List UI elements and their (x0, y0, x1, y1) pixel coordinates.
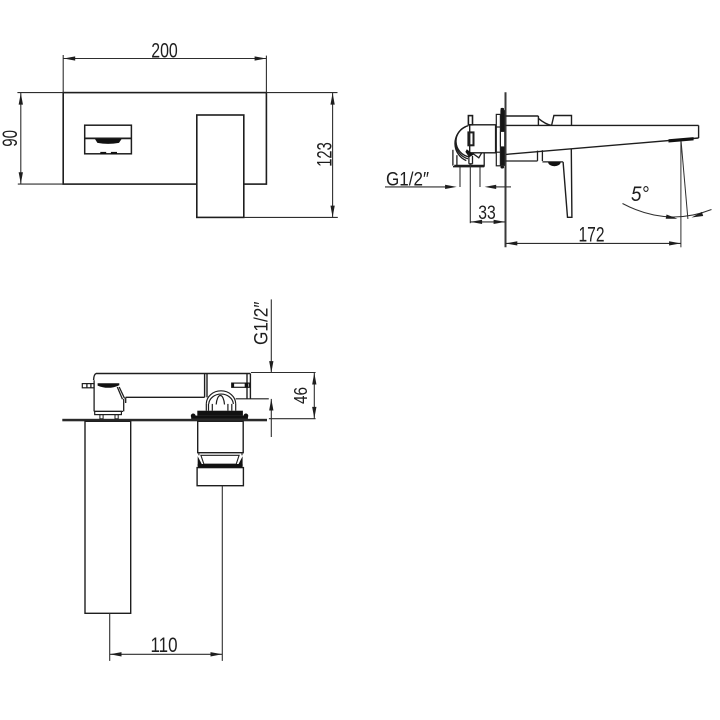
svg-text:G1/2″: G1/2″ (252, 301, 273, 345)
svg-text:123: 123 (314, 142, 337, 167)
svg-text:90: 90 (0, 130, 22, 147)
svg-text:G1/2″: G1/2″ (386, 169, 429, 190)
svg-text:33: 33 (478, 203, 496, 224)
svg-text:5°: 5° (631, 183, 649, 206)
svg-text:172: 172 (579, 223, 605, 246)
svg-text:110: 110 (151, 634, 178, 657)
svg-text:46: 46 (291, 387, 311, 404)
svg-text:200: 200 (151, 39, 178, 62)
